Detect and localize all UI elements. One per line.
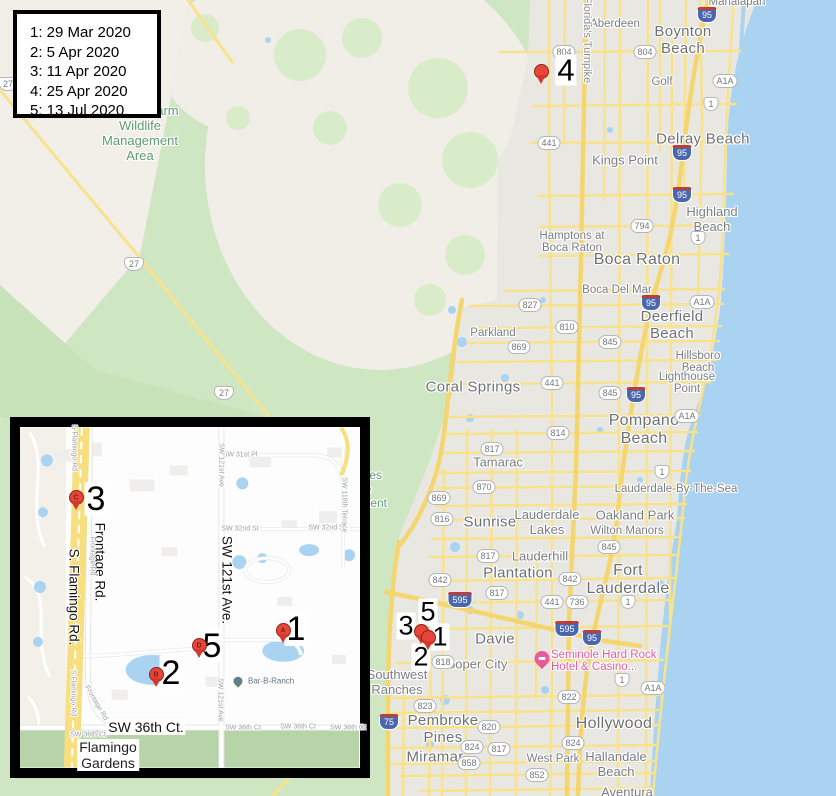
legend-entry-5: 5: 13 Jul 2020 — [30, 101, 157, 121]
legend-entry-2: 2: 5 Apr 2020 — [30, 43, 157, 63]
inset-map — [10, 417, 370, 778]
legend-entry-4: 4: 25 Apr 2020 — [30, 82, 157, 102]
inset-map-graphics — [20, 427, 360, 768]
map-canvas[interactable]: Boynton BeachDelray BeachBoca RatonDeerf… — [0, 0, 836, 796]
legend-entry-1: 1: 29 Mar 2020 — [30, 23, 157, 43]
legend-box: 1: 29 Mar 2020 2: 5 Apr 2020 3: 11 Apr 2… — [13, 10, 161, 118]
legend-entry-3: 3: 11 Apr 2020 — [30, 62, 157, 82]
